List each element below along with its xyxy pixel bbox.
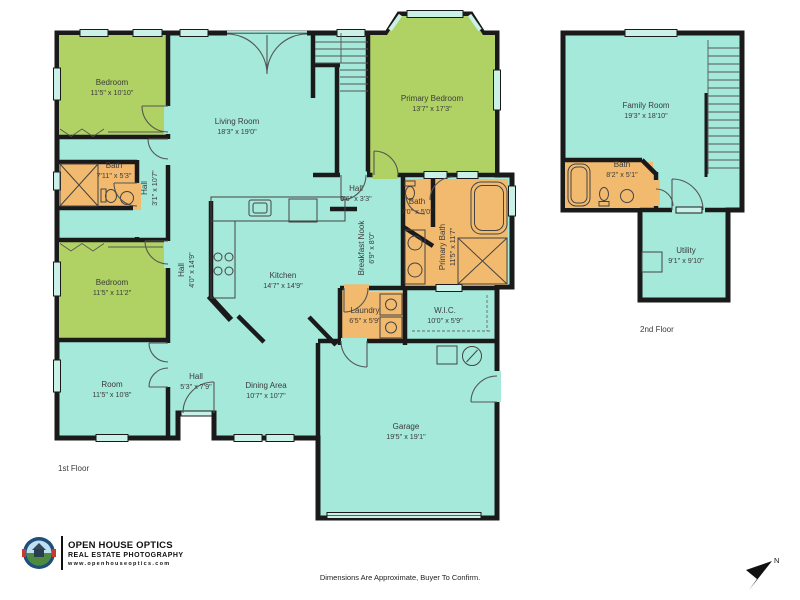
company-website: www.openhouseoptics.com bbox=[68, 561, 184, 567]
first-floor-plan bbox=[54, 11, 516, 519]
floorplan-drawing: N bbox=[0, 0, 800, 600]
north-label: N bbox=[774, 556, 779, 565]
second-floor-plan bbox=[563, 30, 742, 301]
disclaimer-text: Dimensions Are Approximate, Buyer To Con… bbox=[320, 573, 480, 582]
second-floor-title: 2nd Floor bbox=[640, 325, 674, 334]
logo-badge-icon bbox=[22, 536, 56, 570]
room-fill-primary-bedroom bbox=[370, 16, 495, 173]
floorplan-page: N Bedroom11'5" x 10'10"Living Room18'3" … bbox=[0, 0, 800, 600]
first-floor-title: 1st Floor bbox=[58, 464, 89, 473]
company-logo: OPEN HOUSE OPTICS REAL ESTATE PHOTOGRAPH… bbox=[22, 536, 184, 570]
room-fill-bath-1 bbox=[59, 164, 135, 206]
room-fill-bedroom-2 bbox=[59, 242, 166, 338]
company-tagline: REAL ESTATE PHOTOGRAPHY bbox=[68, 552, 184, 559]
north-arrow-icon: N bbox=[746, 556, 779, 590]
company-name: OPEN HOUSE OPTICS bbox=[68, 540, 184, 551]
room-fill-bedroom-1 bbox=[59, 35, 166, 135]
logo-divider bbox=[61, 536, 63, 570]
